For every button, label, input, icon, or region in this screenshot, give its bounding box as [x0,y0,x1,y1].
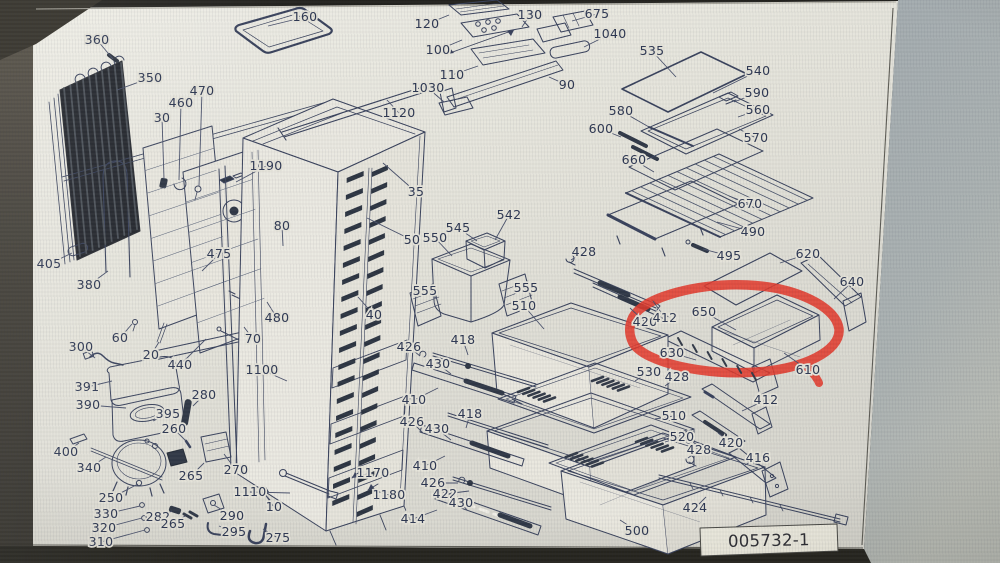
part-label-495: 495 [717,248,742,263]
part-label-670: 670 [738,196,763,211]
part-label-265: 265 [161,516,186,531]
part-label-390: 390 [76,397,101,412]
part-label-350: 350 [138,70,163,85]
part-label-530: 530 [637,364,662,379]
part-label-330: 330 [94,506,119,521]
part-label-480: 480 [265,310,290,325]
part-label-650: 650 [692,304,717,319]
part-label-380: 380 [77,277,102,292]
part-label-542: 542 [497,207,522,222]
part-label-440: 440 [168,357,193,372]
bezel-left [0,0,33,563]
part-label-418: 418 [458,406,483,421]
part-label-535: 535 [640,43,665,58]
part-label-560: 560 [746,102,771,117]
part-label-545: 545 [446,220,471,235]
part-label-40: 40 [366,307,383,322]
part-label-391: 391 [75,379,100,394]
part-label-640: 640 [840,274,865,289]
part-label-1180: 1180 [372,487,405,502]
part-label-310: 310 [89,534,114,549]
part-label-418: 418 [451,332,476,347]
part-label-570: 570 [744,130,769,145]
part-label-405: 405 [37,256,62,271]
part-label-428: 428 [687,442,712,457]
part-label-416: 416 [746,450,771,465]
part-label-275: 275 [266,530,291,545]
part-label-160: 160 [293,9,318,24]
part-label-1040: 1040 [593,26,626,41]
part-label-675: 675 [585,6,610,21]
part-label-620: 620 [796,246,821,261]
photographed-screen: 005732-1 3603501603046047011901120120100… [0,0,1000,563]
drawing-number-box: 005732-1 [700,524,838,556]
part-label-590: 590 [745,85,770,100]
part-label-540: 540 [746,63,771,78]
part-label-430: 430 [449,495,474,510]
part-label-280: 280 [192,387,217,402]
part-label-600: 600 [589,121,614,136]
part-label-1120: 1120 [382,105,415,120]
part-label-80: 80 [274,218,291,233]
part-label-260: 260 [162,421,187,436]
part-label-490: 490 [741,224,766,239]
part-label-360: 360 [85,32,110,47]
part-label-30: 30 [154,110,171,125]
part-label-414: 414 [401,511,426,526]
part-label-20: 20 [143,347,160,362]
part-label-420: 420 [719,435,744,450]
part-label-426: 426 [397,339,422,354]
part-label-1170: 1170 [356,465,389,480]
part-label-295: 295 [222,524,247,539]
part-label-550: 550 [423,230,448,245]
part-label-470: 470 [190,83,215,98]
part-label-426: 426 [400,414,425,429]
part-label-250: 250 [99,490,124,505]
part-label-1190: 1190 [249,158,282,173]
part-label-300: 300 [69,339,94,354]
part-label-320: 320 [92,520,117,535]
part-label-265: 265 [179,468,204,483]
part-label-428: 428 [572,244,597,259]
part-label-120: 120 [415,16,440,31]
parts-diagram: 005732-1 3603501603046047011901120120100… [0,0,1000,563]
part-label-70: 70 [245,331,262,346]
part-label-430: 430 [425,421,450,436]
part-label-1100: 1100 [245,362,278,377]
part-label-424: 424 [683,500,708,515]
part-label-430: 430 [426,356,451,371]
drawing-number: 005732-1 [728,530,810,551]
part-label-35: 35 [408,184,425,199]
part-label-610: 610 [796,362,821,377]
part-label-580: 580 [609,103,634,118]
part-label-412: 412 [653,310,678,325]
part-label-10: 10 [266,499,283,514]
part-label-428: 428 [665,369,690,384]
part-label-410: 410 [413,458,438,473]
part-label-270: 270 [224,462,249,477]
part-label-1030: 1030 [411,80,444,95]
part-label-400: 400 [54,444,79,459]
part-label-290: 290 [220,508,245,523]
part-label-555: 555 [413,283,438,298]
part-label-1110: 1110 [233,484,266,499]
part-label-660: 660 [622,152,647,167]
part-label-100: 100 [426,42,451,57]
part-label-395: 395 [156,406,181,421]
part-label-412: 412 [754,392,779,407]
part-label-475: 475 [207,246,232,261]
part-label-60: 60 [112,330,129,345]
part-label-90: 90 [559,77,576,92]
part-label-130: 130 [518,7,543,22]
part-label-340: 340 [77,460,102,475]
part-label-510: 510 [662,408,687,423]
part-label-410: 410 [402,392,427,407]
part-label-500: 500 [625,523,650,538]
part-label-555: 555 [514,280,539,295]
part-label-510: 510 [512,298,537,313]
part-label-50: 50 [404,232,421,247]
part-label-630: 630 [660,345,685,360]
